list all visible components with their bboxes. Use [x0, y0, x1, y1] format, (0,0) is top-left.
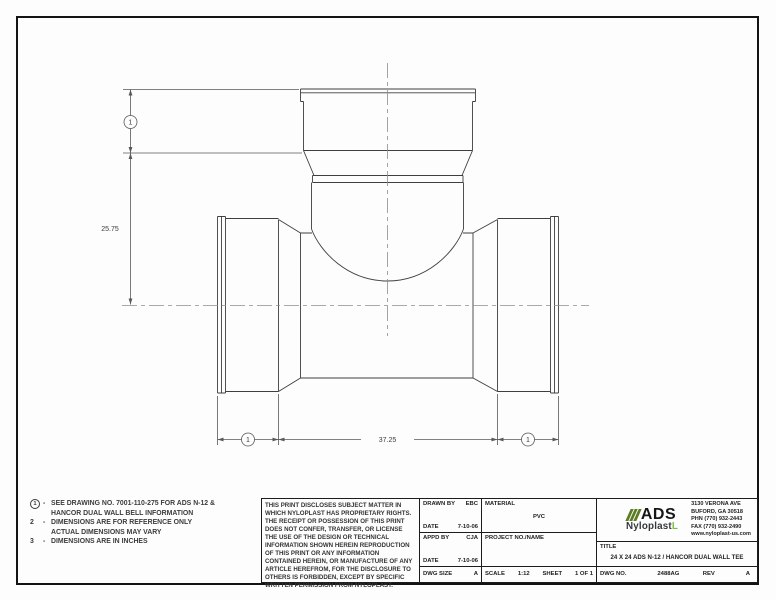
date1-value: 7-10-06 [458, 524, 478, 530]
address-line: FAX (770) 932-2490 [691, 524, 751, 531]
company-website: www.nyloplast-us.com [691, 531, 751, 538]
drawing-sheet: 1 1 1 25.75 37.25 1 - SEE DRAWING NO. 70… [0, 0, 776, 600]
dwg-no-label: DWG NO. [600, 571, 634, 577]
material-column: MATERIAL PVC PROJECT NO./NAME SCALE 1:12… [482, 499, 597, 582]
signature-column: DRAWN BY EBC DATE 7-10-06 APPD BY CJA DA… [420, 499, 482, 582]
rev-value: A [746, 571, 750, 577]
dwg-size-value: A [474, 571, 478, 577]
centerlines [122, 63, 589, 336]
tee-outline [218, 89, 559, 393]
drawing-title: 24 X 24 ADS N-12 / HANCOR DUAL WALL TEE [600, 554, 754, 561]
note-2-number: 2 [30, 518, 43, 537]
sheet-label: SHEET [542, 571, 562, 577]
drawn-by-value: EBC [466, 501, 478, 507]
logo-ads-text: ADS [641, 508, 676, 522]
title-label: TITLE [600, 544, 754, 550]
note-1: 1 - SEE DRAWING NO. 7001-110-275 FOR ADS… [30, 499, 258, 518]
note-2-line1: DIMENSIONS ARE FOR REFERENCE ONLY [51, 518, 258, 528]
address-line: 3130 VERONA AVE [691, 501, 751, 508]
address-line: BUFORD, GA 30518 [691, 509, 751, 516]
address-line: PHN (770) 932-2443 [691, 516, 751, 523]
balloon-1-left: 1 [246, 437, 250, 444]
scale-label: SCALE [485, 571, 505, 577]
rev-label: REV [703, 571, 737, 577]
project-label: PROJECT NO./NAME [485, 535, 593, 541]
company-column: ADS NyloplastL 3130 VERONA AVE BUFORD, G… [597, 499, 757, 582]
sheet-value: 1 OF 1 [575, 571, 593, 577]
dim-horizontal-value: 37.25 [379, 437, 397, 444]
dwg-size-label: DWG SIZE [423, 571, 452, 577]
appd-by-label: APPD BY [423, 535, 449, 541]
date2-label: DATE [423, 558, 439, 564]
dwg-no-value: 2488AG [634, 571, 703, 577]
logo-accent-mark: L [672, 521, 678, 532]
date1-label: DATE [423, 524, 439, 530]
title-block: THIS PRINT DISCLOSES SUBJECT MATTER IN W… [261, 498, 758, 583]
logo-nyloplast-text: Nyloplast [626, 521, 672, 532]
dim-vertical-value: 25.75 [101, 226, 119, 233]
technical-drawing: 1 1 1 25.75 37.25 [0, 0, 776, 498]
balloon-1-right: 1 [526, 437, 530, 444]
note-2-line2: ACTUAL DIMENSIONS MAY VARY [51, 528, 258, 538]
notes-list: 1 - SEE DRAWING NO. 7001-110-275 FOR ADS… [30, 499, 258, 547]
drawn-by-label: DRAWN BY [423, 501, 455, 507]
note-2: 2 - DIMENSIONS ARE FOR REFERENCE ONLY AC… [30, 518, 258, 537]
dimension-lines [123, 90, 559, 446]
dimension-arrowheads [129, 90, 559, 442]
material-value: PVC [485, 514, 593, 520]
company-address: 3130 VERONA AVE BUFORD, GA 30518 PHN (77… [691, 501, 754, 538]
note-1-number: 1 [30, 499, 40, 509]
note-3-line1: DIMENSIONS ARE IN INCHES [51, 537, 258, 547]
note-3-number: 3 [30, 537, 43, 547]
note-3: 3 - DIMENSIONS ARE IN INCHES [30, 537, 258, 547]
scale-value: 1:12 [518, 571, 530, 577]
proprietary-disclaimer: THIS PRINT DISCLOSES SUBJECT MATTER IN W… [262, 499, 420, 582]
material-label: MATERIAL [485, 501, 593, 507]
note-1-line1: SEE DRAWING NO. 7001-110-275 FOR ADS N-1… [51, 499, 258, 509]
ads-nyloplast-logo: ADS NyloplastL [626, 508, 678, 532]
balloon-1-top: 1 [129, 119, 133, 126]
appd-by-value: CJA [466, 535, 478, 541]
note-1-line2: HANCOR DUAL WALL BELL INFORMATION [51, 509, 258, 519]
date2-value: 7-10-06 [458, 558, 478, 564]
